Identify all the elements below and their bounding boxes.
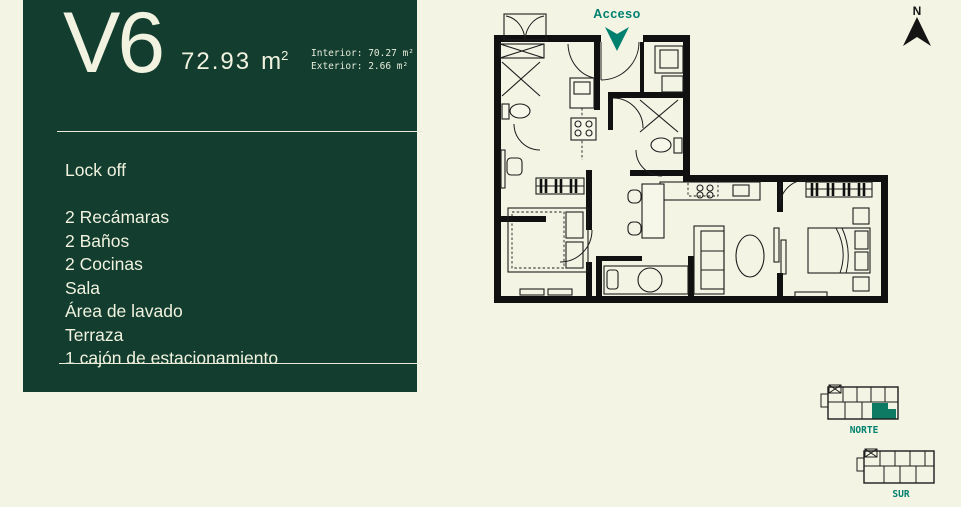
feature-item: Área de lavado (65, 300, 278, 324)
compass: N (903, 4, 931, 46)
wardrobe-2 (806, 182, 872, 197)
laundry (604, 266, 688, 294)
chair (507, 158, 522, 175)
wardrobe (536, 178, 584, 194)
feature-heading: Lock off (65, 159, 278, 183)
sofa (694, 226, 724, 294)
exterior-area: Exterior: 2.66 m² (311, 60, 414, 73)
kitchen (570, 78, 596, 160)
floor-plan-graphic: Acceso (440, 0, 961, 507)
total-area-unit: m (261, 48, 281, 75)
locator-sur-label: SUR (892, 489, 909, 500)
interior-area: Interior: 70.27 m² (311, 47, 414, 60)
feature-item: Sala (65, 277, 278, 301)
kitchen-2 (660, 182, 760, 200)
feature-list: Lock off 2 Recámaras 2 Baños 2 Cocinas S… (65, 159, 278, 371)
feature-item: 2 Cocinas (65, 253, 278, 277)
divider-bottom (59, 363, 422, 364)
bed-2 (808, 208, 870, 291)
access-arrow-icon (605, 27, 629, 51)
desk (501, 150, 505, 188)
feature-item: 2 Baños (65, 230, 278, 254)
feature-item: 2 Recámaras (65, 206, 278, 230)
dining-bar (628, 184, 664, 238)
locator-map-norte: NORTE (821, 385, 898, 436)
area-breakdown: Interior: 70.27 m² Exterior: 2.66 m² (311, 47, 414, 73)
unit-info-panel: V6 72.93m2 Interior: 70.27 m² Exterior: … (23, 0, 417, 392)
divider-top (57, 131, 423, 132)
total-area-value: 72.93 (181, 48, 251, 75)
compass-north-arrow-icon (903, 17, 931, 46)
sliding-door (774, 228, 779, 262)
toilet (502, 104, 530, 119)
floor-plan-walls (494, 35, 888, 303)
bathroom (640, 100, 682, 153)
locator-map-sur: SUR (857, 449, 934, 500)
feature-item: 1 cajón de estacionamiento (65, 347, 278, 371)
total-area: 72.93m2 (181, 48, 288, 76)
feature-item: Terraza (65, 324, 278, 348)
locator-norte-label: NORTE (850, 425, 879, 436)
access-label: Acceso (593, 7, 640, 21)
access-callout: Acceso (593, 7, 640, 51)
coffee-table (736, 235, 764, 277)
unit-name: V6 (63, 0, 162, 93)
compass-north-label: N (913, 4, 922, 18)
total-area-superscript: 2 (281, 48, 288, 63)
